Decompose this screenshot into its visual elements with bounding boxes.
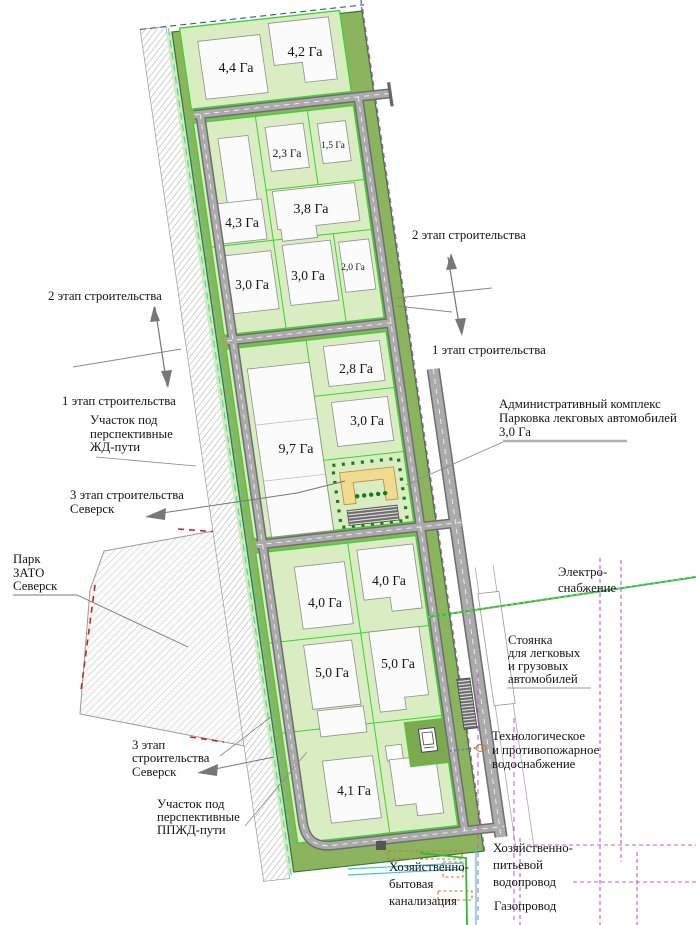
plot-label-4-0b: 4,0 Га <box>372 573 406 588</box>
gas-label: Газопровод <box>494 899 557 913</box>
water-tech-label-line1: Технологическое <box>492 729 585 743</box>
stage3-upper-arrow-head <box>145 508 166 520</box>
park-label-line2: ЗАТО <box>13 566 44 580</box>
stage-cross-right-line1 <box>397 288 492 298</box>
plot-label-5-0a: 5,0 Га <box>315 665 349 680</box>
electro-label-line1: Электро- <box>558 565 607 579</box>
stage-cross-left-line <box>73 349 181 367</box>
water-tech-label-line3: водоснабжение <box>492 757 576 771</box>
stage3-upper-label-line1: 3 этап строительства <box>70 488 184 502</box>
stage2-right-label: 2 этап строительства <box>412 228 526 242</box>
plot-label-4-3: 4,3 Га <box>225 215 259 230</box>
plot-label-2-8: 2,8 Га <box>339 361 373 376</box>
parking-label-line4: автомобилей <box>508 672 578 686</box>
stage-arrow-right-up-head <box>446 253 457 270</box>
road-dead-end-bar <box>389 82 392 106</box>
plot-label-3-0c: 3,0 Га <box>350 413 384 428</box>
stage3-lower-label-line3: Северск <box>132 765 177 779</box>
stage3-lower-label-line2: строительства <box>132 751 210 765</box>
plot-label-4-4: 4,4 Га <box>219 61 255 76</box>
park-label-line3: Северск <box>13 579 58 593</box>
rail-corridor-label-line1: Участок под <box>90 413 158 427</box>
water-drink-label-line1: Хозяйственно- <box>493 841 573 855</box>
rail-lower-label-line3: ППЖД-пути <box>157 823 226 837</box>
stage1-right-label: 1 этап строительства <box>432 343 546 357</box>
stage3-upper-label-line2: Северск <box>70 502 115 516</box>
water-drink-label-line2: питьевой <box>493 858 543 872</box>
electro-label-line2: снабжение <box>558 581 616 595</box>
water-drink-label-line3: водопровод <box>493 875 557 889</box>
plot-label-4-1: 4,1 Га <box>337 783 371 798</box>
sewer-label-line2: бытовая <box>389 877 433 891</box>
site-plan-canvas: 4,4 Га 4,2 Га 2,3 Га 1,5 Га 4,3 Га 3,8 Г… <box>0 0 696 925</box>
parking-label-line1: Стоянка <box>508 633 553 647</box>
rail-lower-label-line2: перспективные <box>157 810 240 824</box>
parking-label-line2: для легковых <box>508 646 581 660</box>
stage1-left-label: 1 этап строительства <box>62 394 176 408</box>
plot-label-2-3: 2,3 Га <box>273 148 302 160</box>
rail-corridor-label-line2: перспективные <box>90 427 173 441</box>
plot-label-4-2: 4,2 Га <box>288 45 324 60</box>
plot-label-2-0: 2,0 Га <box>341 263 366 273</box>
site-group <box>140 0 537 881</box>
plot-label-5-0b: 5,0 Га <box>381 656 415 671</box>
admin-label-line1: Административный комплекс <box>499 397 661 411</box>
admin-label-line2: Парковка лекговых автомобилей <box>499 411 677 425</box>
site-plan-svg: 4,4 Га 4,2 Га 2,3 Га 1,5 Га 4,3 Га 3,8 Г… <box>0 0 696 925</box>
rail-corridor-leader <box>96 457 196 466</box>
stage2-left-label: 2 этап строительства <box>48 289 162 303</box>
substation-icon <box>418 728 437 753</box>
plot-label-3-0b: 3,0 Га <box>291 268 325 283</box>
rail-lower-label-line1: Участок под <box>157 797 225 811</box>
gate-marker <box>376 841 386 850</box>
plot-label-3-8: 3,8 Га <box>294 202 330 217</box>
water-tech-label-line2: и противопожарное <box>492 743 600 757</box>
plot-label-4-0a: 4,0 Га <box>308 595 342 610</box>
parking-label-line3: и грузовых <box>508 659 569 673</box>
plot-label-3-0a: 3,0 Га <box>235 277 269 292</box>
park-label-line1: Парк <box>13 552 41 566</box>
sewer-label-line1: Хозяйственно- <box>389 860 469 874</box>
stage-arrow-right-down-head <box>455 318 466 336</box>
stage3-lower-arrow-head <box>197 764 218 776</box>
rail-corridor-label-line3: ЖД-пути <box>90 440 140 454</box>
plot-block-small-a <box>317 706 367 737</box>
plot-label-9-7: 9,7 Га <box>279 442 315 457</box>
sewer-label-line3: канализация <box>389 894 457 908</box>
plot-label-1-5: 1,5 Га <box>321 141 346 151</box>
admin-label-line3: 3,0 Га <box>499 425 531 439</box>
stage3-lower-label-line1: 3 этап <box>132 738 165 752</box>
